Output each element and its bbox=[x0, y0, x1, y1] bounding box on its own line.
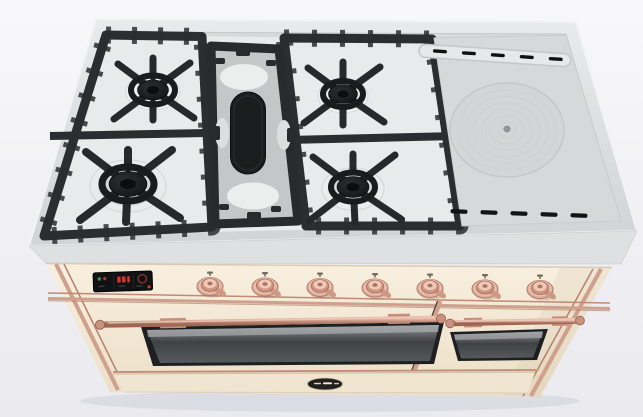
burner-front-right bbox=[331, 173, 375, 202]
handle-finial bbox=[576, 316, 585, 325]
handle-finial bbox=[95, 320, 104, 329]
vent-slot bbox=[510, 211, 527, 216]
burner-front-left bbox=[102, 167, 154, 201]
grate-mid-rail bbox=[288, 136, 457, 140]
oven-door-right bbox=[450, 329, 548, 361]
display-green-indicator bbox=[98, 277, 101, 280]
grate-section bbox=[44, 35, 460, 236]
plate-center-dot bbox=[504, 126, 510, 132]
handle-finial bbox=[436, 314, 445, 323]
center-griddle-column bbox=[211, 46, 298, 224]
brand-badge bbox=[306, 377, 345, 391]
range-cooker-render bbox=[0, 0, 643, 417]
vent-slot bbox=[480, 210, 497, 215]
burner-back-right bbox=[323, 81, 363, 107]
burner-back-left bbox=[131, 76, 175, 105]
vent-slot bbox=[450, 209, 467, 214]
grate-mid-rail bbox=[50, 133, 207, 136]
control-display bbox=[93, 271, 153, 292]
oval-griddle-plate bbox=[231, 92, 266, 174]
oven-door-left bbox=[141, 322, 444, 366]
cooktop bbox=[29, 19, 637, 264]
vent-slot bbox=[570, 213, 587, 218]
front-panel bbox=[46, 263, 612, 397]
vent-slot bbox=[540, 212, 557, 217]
kickplate bbox=[113, 370, 536, 394]
product-image bbox=[0, 0, 643, 417]
display-digits bbox=[117, 276, 130, 282]
handle-finial bbox=[446, 319, 455, 328]
french-top-plate bbox=[450, 83, 564, 177]
